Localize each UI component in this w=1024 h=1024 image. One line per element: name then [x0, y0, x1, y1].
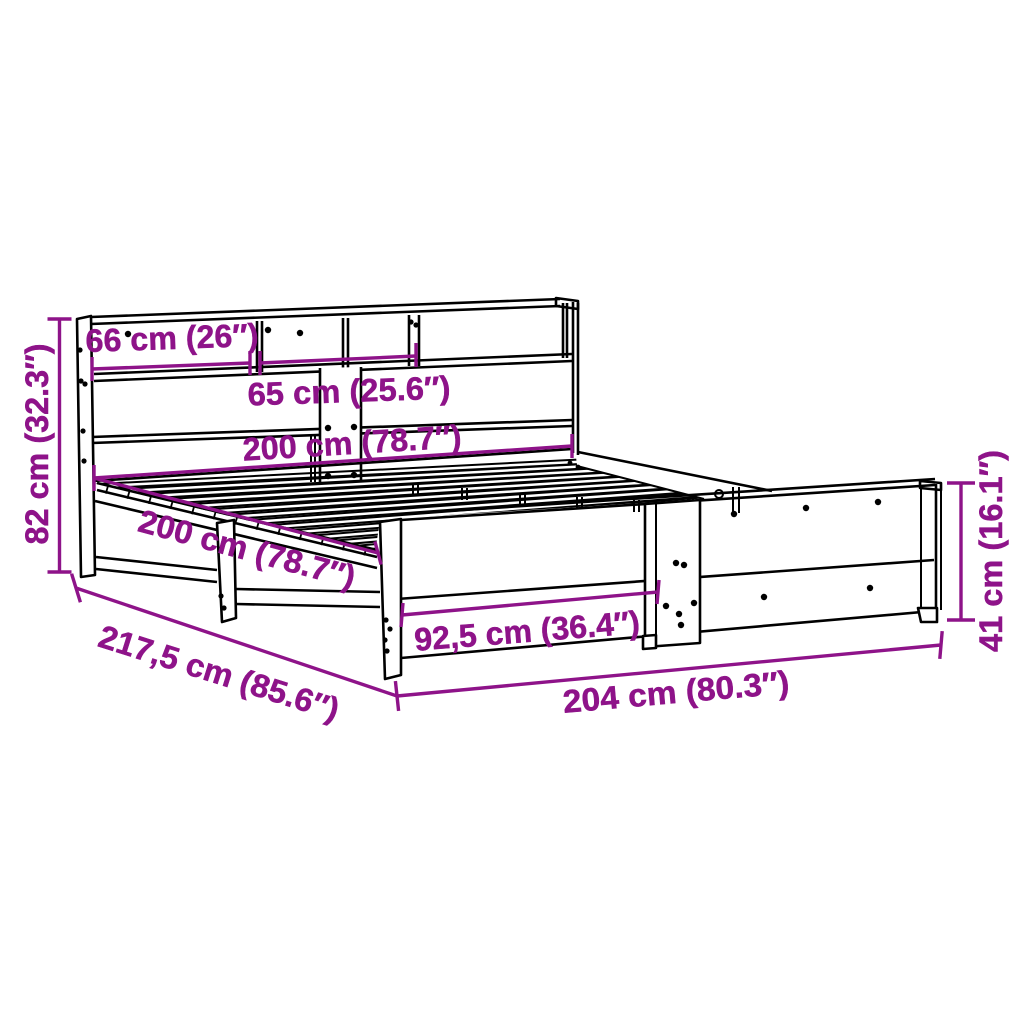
svg-text:65 cm (25.6″): 65 cm (25.6″) [247, 369, 451, 412]
svg-text:82 cm (32.3″): 82 cm (32.3″) [19, 344, 55, 545]
svg-text:41 cm (16.1″): 41 cm (16.1″) [973, 450, 1009, 652]
svg-text:66 cm (26″): 66 cm (26″) [85, 317, 259, 359]
